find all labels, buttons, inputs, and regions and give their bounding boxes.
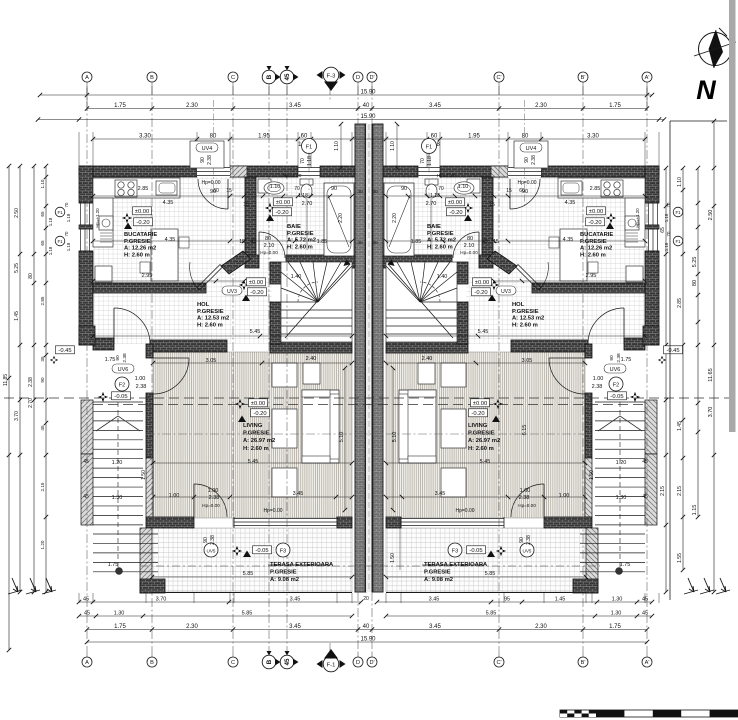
svg-text:3.45: 3.45 (293, 491, 304, 497)
svg-text:90: 90 (519, 537, 525, 543)
svg-text:UV3: UV3 (227, 289, 237, 295)
svg-text:2.70: 2.70 (28, 398, 34, 408)
svg-text:35: 35 (40, 356, 45, 362)
svg-text:1.18: 1.18 (307, 156, 313, 166)
svg-text:-0.05: -0.05 (610, 394, 623, 400)
svg-text:1.18: 1.18 (664, 242, 669, 251)
svg-text:90: 90 (40, 377, 45, 383)
svg-text:15.90: 15.90 (360, 89, 376, 95)
svg-text:1.20: 1.20 (112, 460, 123, 466)
svg-text:65: 65 (40, 240, 45, 246)
svg-text:BAIE: BAIE (287, 224, 301, 230)
svg-text:F3: F3 (452, 549, 458, 555)
svg-text:2.20: 2.20 (392, 213, 398, 223)
svg-text:1.18: 1.18 (427, 156, 433, 166)
svg-text:40: 40 (363, 624, 370, 630)
svg-text:A': A' (645, 75, 650, 81)
svg-text:A: A (85, 660, 89, 666)
svg-text:BAIE: BAIE (427, 224, 441, 230)
svg-text:A: 5.72 m2: A: 5.72 m2 (287, 238, 316, 244)
svg-text:B: B (150, 75, 154, 81)
svg-text:90: 90 (115, 355, 121, 361)
svg-text:45: 45 (83, 494, 89, 500)
svg-text:3.45: 3.45 (429, 103, 441, 109)
svg-text:15: 15 (243, 202, 249, 208)
svg-text:2.40: 2.40 (306, 356, 317, 362)
svg-text:2.30: 2.30 (535, 103, 547, 109)
svg-text:F1: F1 (426, 144, 432, 150)
svg-text:B: B (150, 660, 154, 666)
svg-text:65: 65 (40, 211, 45, 217)
svg-text:1.10: 1.10 (677, 177, 683, 187)
svg-text:Hp=0.00: Hp=0.00 (517, 180, 536, 186)
svg-text:1.10: 1.10 (334, 141, 340, 151)
svg-text:UV4: UV4 (526, 146, 537, 152)
svg-text:1.45: 1.45 (555, 596, 566, 602)
svg-text:1.18: 1.18 (430, 193, 440, 199)
svg-text:2.10: 2.10 (264, 243, 275, 249)
svg-text:2.40: 2.40 (422, 356, 433, 362)
svg-text:15: 15 (493, 239, 499, 245)
svg-text:4.35: 4.35 (163, 200, 174, 206)
svg-text:2.38: 2.38 (592, 384, 603, 390)
svg-text:-0.20: -0.20 (471, 411, 484, 417)
svg-text:2.38: 2.38 (210, 535, 216, 545)
svg-text:-0.45: -0.45 (666, 348, 679, 354)
svg-text:1.75: 1.75 (621, 357, 632, 363)
svg-text:15: 15 (239, 239, 245, 245)
svg-text:-0.20: -0.20 (474, 290, 487, 296)
svg-text:A: 12,26 m2: A: 12,26 m2 (580, 246, 612, 252)
svg-text:A: 26.97 m2: A: 26.97 m2 (468, 438, 500, 444)
svg-text:P.GRESIE: P.GRESIE (427, 231, 454, 237)
svg-text:-0.05: -0.05 (114, 394, 127, 400)
svg-text:1.00: 1.00 (559, 493, 570, 499)
svg-text:BUCATARIE: BUCATARIE (124, 232, 157, 238)
svg-text:B': B' (581, 660, 586, 666)
svg-text:3.70: 3.70 (14, 411, 20, 421)
svg-text:3.30: 3.30 (587, 133, 599, 139)
svg-text:1.75: 1.75 (105, 357, 116, 363)
svg-text:F1: F1 (675, 239, 681, 244)
svg-text:5.45: 5.45 (478, 329, 489, 335)
svg-text:F2: F2 (613, 383, 619, 389)
svg-text:70: 70 (294, 186, 300, 192)
svg-text:-0.20: -0.20 (588, 220, 601, 226)
svg-text:-0.20: -0.20 (136, 220, 149, 226)
svg-text:11.65: 11.65 (708, 368, 714, 381)
svg-text:2.38: 2.38 (209, 495, 220, 501)
svg-text:Hp= 1.20: Hp= 1.20 (437, 173, 456, 178)
svg-text:1.75: 1.75 (609, 624, 621, 630)
svg-text:C: C (231, 660, 235, 666)
svg-text:2.50: 2.50 (708, 210, 714, 221)
svg-text:P.GRESIE: P.GRESIE (243, 431, 270, 437)
svg-text:UV4: UV4 (202, 146, 213, 152)
svg-text:45: 45 (642, 610, 648, 616)
svg-text:5.45: 5.45 (250, 329, 261, 335)
svg-text:90: 90 (524, 157, 530, 163)
svg-text:2.38: 2.38 (28, 377, 34, 387)
svg-text:1.00: 1.00 (520, 488, 531, 494)
svg-text:3.05: 3.05 (522, 358, 533, 364)
svg-text:UV6: UV6 (118, 367, 129, 373)
svg-text:2.38: 2.38 (519, 495, 530, 501)
svg-text:45: 45 (40, 425, 45, 431)
svg-text:A: A (85, 75, 89, 81)
svg-text:H: 2.60 m: H: 2.60 m (468, 446, 494, 452)
svg-text:1.18: 1.18 (298, 193, 308, 199)
svg-text:70: 70 (300, 158, 306, 164)
svg-text:F1: F1 (675, 210, 681, 215)
svg-text:Hp=0.00: Hp=0.00 (455, 508, 474, 514)
svg-text:B: B (266, 659, 273, 664)
svg-text:A: 12.53 m2: A: 12.53 m2 (197, 316, 229, 322)
svg-text:H: 2.60 m: H: 2.60 m (580, 252, 606, 258)
svg-text:H: 2.60 m: H: 2.60 m (427, 244, 453, 250)
svg-text:1.18: 1.18 (66, 213, 71, 222)
svg-text:15: 15 (226, 188, 232, 194)
svg-text:40: 40 (363, 103, 370, 109)
svg-text:±0.00: ±0.00 (448, 200, 462, 206)
svg-text:70: 70 (438, 186, 444, 192)
svg-text:±0.00: ±0.00 (475, 280, 489, 286)
svg-text:45: 45 (642, 494, 648, 500)
svg-text:UV3: UV3 (501, 289, 511, 295)
svg-text:1.30: 1.30 (616, 495, 627, 501)
svg-text:1.95: 1.95 (468, 133, 480, 139)
svg-text:2.38: 2.38 (531, 155, 537, 165)
svg-text:Hp=0.00: Hp=0.00 (260, 250, 278, 255)
svg-text:H: 2.60 m: H: 2.60 m (124, 252, 150, 258)
svg-text:A: 26.97 m2: A: 26.97 m2 (243, 438, 275, 444)
svg-text:80: 80 (692, 280, 698, 286)
svg-text:LIVING: LIVING (243, 423, 263, 429)
svg-text:±0.00: ±0.00 (276, 200, 290, 206)
svg-text:P.GRESIE: P.GRESIE (424, 569, 451, 575)
svg-text:P.GRESIE: P.GRESIE (512, 309, 539, 315)
svg-text:15.90: 15.90 (360, 114, 376, 120)
svg-text:5.45: 5.45 (480, 459, 491, 465)
svg-text:1.85: 1.85 (411, 239, 422, 245)
svg-text:45: 45 (84, 610, 90, 616)
svg-text:D': D' (369, 75, 374, 81)
svg-text:P.GRESIE: P.GRESIE (468, 431, 495, 437)
svg-text:5.10: 5.10 (392, 432, 398, 443)
svg-text:P.GRESIE: P.GRESIE (580, 239, 607, 245)
svg-text:H: 2.60 m: H: 2.60 m (512, 322, 538, 328)
svg-text:60: 60 (519, 188, 525, 194)
svg-text:1.10: 1.10 (40, 179, 45, 188)
svg-text:Hp=+1.20: Hp=+1.20 (95, 208, 100, 228)
svg-text:F1: F1 (57, 239, 63, 244)
svg-text:Hp=+1.20: Hp=+1.20 (635, 208, 640, 228)
svg-text:C': C' (496, 75, 501, 81)
svg-text:1.75: 1.75 (620, 562, 631, 568)
svg-text:2.85: 2.85 (677, 298, 683, 308)
svg-text:Hp=0.00: Hp=0.00 (202, 503, 220, 508)
svg-text:5.25: 5.25 (692, 257, 698, 268)
svg-text:5.85: 5.85 (486, 610, 497, 616)
svg-text:3.45: 3.45 (429, 624, 441, 630)
svg-text:1.30: 1.30 (611, 610, 622, 616)
svg-text:1.30: 1.30 (114, 610, 125, 616)
svg-text:2.38: 2.38 (207, 155, 213, 165)
svg-text:60: 60 (213, 188, 219, 194)
svg-text:±0.00: ±0.00 (249, 280, 263, 286)
svg-text:H: 2.60 m: H: 2.60 m (287, 244, 313, 250)
svg-text:Hp=0.00: Hp=0.00 (201, 180, 220, 186)
svg-text:1.15: 1.15 (692, 505, 698, 516)
svg-text:11.85: 11.85 (3, 374, 9, 386)
svg-text:4.35: 4.35 (563, 237, 574, 243)
svg-text:UV5: UV5 (207, 549, 216, 554)
svg-text:2.15: 2.15 (677, 486, 683, 496)
svg-text:P.GRESIE: P.GRESIE (197, 309, 224, 315)
svg-text:2.95: 2.95 (142, 273, 153, 279)
svg-text:2.30: 2.30 (186, 103, 198, 109)
svg-text:2.85: 2.85 (138, 186, 149, 192)
svg-text:1.18: 1.18 (664, 213, 669, 222)
svg-text:UV6: UV6 (610, 367, 621, 373)
svg-text:1.00: 1.00 (208, 488, 219, 494)
svg-text:±0.00: ±0.00 (251, 401, 265, 407)
svg-text:2.38: 2.38 (136, 384, 147, 390)
svg-text:1.95: 1.95 (258, 133, 270, 139)
svg-text:45: 45 (83, 596, 89, 602)
svg-text:1.18: 1.18 (48, 217, 53, 226)
svg-text:C: C (231, 75, 235, 81)
svg-text:±0.00: ±0.00 (473, 401, 487, 407)
svg-text:P.GRESIE: P.GRESIE (270, 569, 297, 575)
svg-text:1.10: 1.10 (270, 184, 281, 190)
svg-text:A: 12.53 m2: A: 12.53 m2 (512, 316, 544, 322)
svg-text:HOL: HOL (512, 302, 525, 308)
svg-text:3.30: 3.30 (139, 133, 151, 139)
svg-text:-0.05: -0.05 (469, 548, 482, 554)
svg-text:1.45: 1.45 (14, 311, 20, 321)
svg-text:1.45: 1.45 (677, 421, 683, 431)
svg-text:1.75: 1.75 (114, 103, 126, 109)
svg-text:A: 9.08 m2: A: 9.08 m2 (270, 577, 299, 583)
svg-text:F1: F1 (57, 210, 63, 215)
svg-text:2.50: 2.50 (14, 208, 20, 218)
svg-text:2.70: 2.70 (302, 201, 313, 207)
svg-text:BUCATARIE: BUCATARIE (580, 232, 613, 238)
svg-text:80: 80 (28, 273, 34, 279)
svg-text:80: 80 (210, 133, 217, 139)
svg-text:HOL: HOL (197, 302, 210, 308)
svg-text:2.15: 2.15 (660, 486, 666, 496)
svg-text:1.30: 1.30 (612, 596, 623, 602)
svg-text:H: 2.60 m: H: 2.60 m (243, 446, 269, 452)
svg-text:3.05: 3.05 (206, 358, 217, 364)
svg-text:5.10: 5.10 (339, 432, 345, 443)
svg-text:-0.45: -0.45 (58, 348, 71, 354)
svg-text:3.45: 3.45 (290, 596, 301, 602)
svg-text:30: 30 (357, 189, 363, 195)
svg-text:B': B' (581, 75, 586, 81)
svg-text:90: 90 (401, 186, 407, 192)
svg-text:-0.20: -0.20 (250, 290, 263, 296)
svg-text:1.50: 1.50 (390, 553, 396, 563)
svg-text:90: 90 (331, 186, 337, 192)
svg-text:F3: F3 (280, 549, 286, 555)
svg-text:70: 70 (64, 202, 69, 207)
svg-text:A': A' (645, 660, 650, 666)
svg-text:F-1: F-1 (327, 662, 336, 668)
svg-text:1.00: 1.00 (593, 376, 604, 382)
svg-text:1.10: 1.10 (390, 141, 396, 151)
svg-text:60: 60 (431, 133, 438, 139)
svg-text:80: 80 (522, 133, 529, 139)
svg-text:C': C' (496, 660, 501, 666)
svg-text:45: 45 (482, 239, 488, 245)
svg-text:-0.05: -0.05 (255, 548, 268, 554)
svg-text:20: 20 (363, 596, 369, 602)
svg-text:2.30: 2.30 (535, 624, 547, 630)
svg-text:H: 2.60 m: H: 2.60 m (197, 322, 223, 328)
svg-text:-0.20: -0.20 (449, 210, 462, 216)
svg-text:1.20: 1.20 (40, 540, 45, 549)
svg-text:±0.00: ±0.00 (589, 209, 603, 215)
svg-text:Hp=0.00: Hp=0.00 (460, 250, 478, 255)
svg-text:2.20: 2.20 (338, 213, 344, 223)
svg-text:30: 30 (372, 240, 378, 246)
svg-text:2.10: 2.10 (464, 243, 475, 249)
svg-text:15: 15 (489, 202, 495, 208)
svg-text:80: 80 (265, 236, 271, 242)
svg-text:A: 9.08 m2: A: 9.08 m2 (424, 577, 453, 583)
svg-text:45: 45 (642, 459, 648, 465)
svg-text:45: 45 (284, 73, 291, 80)
svg-text:5.85: 5.85 (243, 571, 254, 577)
svg-text:P.GRESIE: P.GRESIE (124, 239, 151, 245)
svg-text:LIVING: LIVING (468, 423, 488, 429)
svg-text:1.20: 1.20 (616, 460, 627, 466)
svg-text:1.00: 1.00 (169, 493, 180, 499)
svg-text:±0.00: ±0.00 (135, 209, 149, 215)
svg-text:2.38: 2.38 (122, 353, 128, 363)
svg-text:2.30: 2.30 (186, 624, 198, 630)
svg-text:2.15: 2.15 (40, 482, 45, 491)
svg-text:3.45: 3.45 (435, 491, 446, 497)
svg-text:5.45: 5.45 (248, 459, 259, 465)
svg-text:45: 45 (284, 658, 291, 665)
svg-text:2.70: 2.70 (426, 201, 437, 207)
svg-text:1.75: 1.75 (114, 624, 126, 630)
svg-text:70: 70 (420, 158, 426, 164)
svg-text:4.35: 4.35 (565, 200, 576, 206)
svg-text:30: 30 (357, 240, 363, 246)
svg-text:1.50: 1.50 (589, 470, 595, 480)
svg-text:Hp= 1.20: Hp= 1.20 (283, 173, 302, 178)
svg-text:3.45: 3.45 (289, 103, 301, 109)
svg-text:A: 5.72 m2: A: 5.72 m2 (427, 238, 456, 244)
svg-text:N: N (696, 75, 716, 105)
svg-text:F2: F2 (119, 383, 125, 389)
svg-text:1.85: 1.85 (317, 239, 328, 245)
svg-text:1.18: 1.18 (66, 242, 71, 251)
svg-text:P.GRESIE: P.GRESIE (287, 231, 314, 237)
svg-text:5.85: 5.85 (242, 610, 253, 616)
svg-text:1.75: 1.75 (609, 103, 621, 109)
svg-text:80: 80 (467, 236, 473, 242)
svg-text:1.30: 1.30 (112, 495, 123, 501)
svg-text:45: 45 (250, 239, 256, 245)
svg-text:45: 45 (83, 459, 89, 465)
svg-text:1.40: 1.40 (291, 274, 302, 280)
svg-text:B: B (266, 74, 273, 79)
svg-text:1.40: 1.40 (437, 274, 448, 280)
svg-text:2.95: 2.95 (586, 273, 597, 279)
svg-text:2.85: 2.85 (40, 296, 45, 305)
svg-text:2.85: 2.85 (590, 186, 601, 192)
svg-text:1.55: 1.55 (677, 553, 683, 563)
svg-text:3.70: 3.70 (156, 596, 167, 602)
svg-text:6.15: 6.15 (522, 425, 528, 436)
svg-text:1.00: 1.00 (135, 376, 146, 382)
svg-text:15.90: 15.90 (360, 636, 376, 642)
svg-text:30: 30 (372, 189, 378, 195)
svg-text:70: 70 (64, 231, 69, 236)
svg-text:F-3: F-3 (327, 73, 336, 79)
svg-text:5.85: 5.85 (485, 571, 496, 577)
svg-text:3.70: 3.70 (708, 407, 714, 418)
svg-text:2.38: 2.38 (526, 535, 532, 545)
svg-text:1.50: 1.50 (141, 470, 147, 480)
svg-text:D: D (356, 660, 360, 666)
svg-text:-0.20: -0.20 (253, 411, 266, 417)
svg-text:Hp=0.00: Hp=0.00 (263, 508, 282, 514)
svg-text:90: 90 (609, 355, 615, 361)
svg-text:1.10: 1.10 (458, 184, 469, 190)
svg-text:F1: F1 (306, 144, 312, 150)
svg-text:D: D (356, 75, 360, 81)
svg-text:1.75: 1.75 (108, 562, 119, 568)
svg-text:UV5: UV5 (523, 549, 532, 554)
svg-text:D': D' (369, 660, 374, 666)
svg-text:90: 90 (203, 537, 209, 543)
svg-text:1.18: 1.18 (48, 246, 53, 255)
svg-text:5.25: 5.25 (14, 263, 20, 273)
svg-text:90: 90 (200, 157, 206, 163)
svg-text:3.45: 3.45 (289, 624, 301, 630)
svg-text:-0.20: -0.20 (275, 210, 288, 216)
svg-text:Hp=0.00: Hp=0.00 (518, 503, 536, 508)
svg-text:15: 15 (506, 188, 512, 194)
svg-text:3.45: 3.45 (429, 596, 440, 602)
svg-text:A: 12,26 m2: A: 12,26 m2 (124, 246, 156, 252)
svg-text:95: 95 (504, 596, 510, 602)
svg-text:4.35: 4.35 (165, 237, 176, 243)
